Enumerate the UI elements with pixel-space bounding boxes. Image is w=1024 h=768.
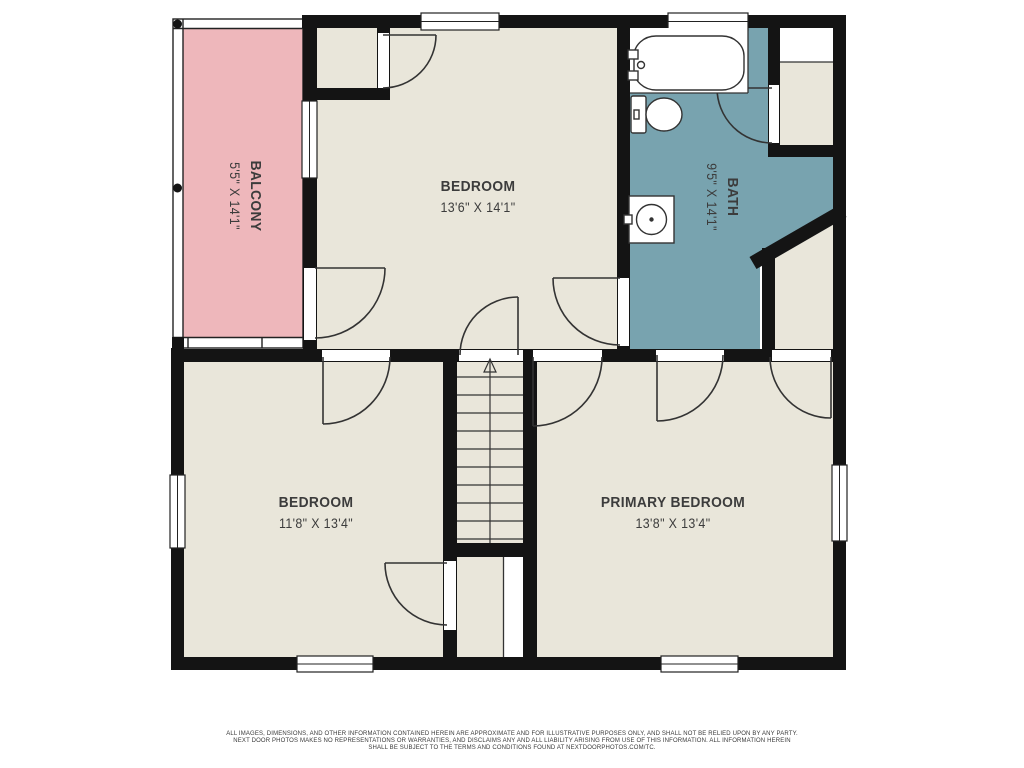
sink-icon [624, 196, 674, 243]
upper-bedroom-dims: 13'6" X 14'1" [441, 197, 516, 218]
disclaimer: ALL IMAGES, DIMENSIONS, AND OTHER INFORM… [0, 731, 1024, 752]
bath-closet-shelf [780, 28, 833, 62]
toilet-icon [631, 96, 682, 133]
lower-bedroom-name: BEDROOM [279, 492, 354, 513]
upper-bedroom-label: BEDROOM 13'6" X 14'1" [441, 176, 516, 218]
bathtub-icon [628, 28, 748, 93]
bath-label: BATH 9'5" X 14'1" [701, 163, 743, 231]
balcony-post [173, 184, 182, 193]
floor-plan-drawing [0, 0, 1024, 768]
disclaimer-line-2: NEXT DOOR PHOTOS MAKES NO REPRESENTATION… [0, 738, 1024, 745]
window-lower-bedroom-bottom [297, 656, 373, 672]
balcony-label: BALCONY 5'5" X 14'1" [224, 161, 266, 232]
primary-bedroom-label: PRIMARY BEDROOM 13'8" X 13'4" [601, 492, 745, 534]
disclaimer-line-3: SHALL BE SUBJECT TO THE TERMS AND CONDIT… [0, 745, 1024, 752]
disclaimer-line-1: ALL IMAGES, DIMENSIONS, AND OTHER INFORM… [0, 731, 1024, 738]
lower-bedroom-label: BEDROOM 11'8" X 13'4" [279, 492, 354, 534]
window-lower-bedroom-left [170, 475, 185, 548]
window-balcony-wall [302, 101, 317, 178]
lower-bedroom-dims: 11'8" X 13'4" [279, 513, 354, 534]
bath-closet-floor [780, 62, 833, 146]
window-upper-bedroom-top [421, 13, 499, 30]
balcony-post [172, 337, 184, 349]
bath-name: BATH [722, 163, 743, 231]
bath-dims: 9'5" X 14'1" [701, 163, 722, 231]
window-primary-bottom [661, 656, 738, 672]
primary-bedroom-name: PRIMARY BEDROOM [601, 492, 745, 513]
upper-bedroom-name: BEDROOM [441, 176, 516, 197]
floor-plan-page: BALCONY 5'5" X 14'1" BEDROOM 13'6" X 14'… [0, 0, 1024, 768]
primary-bedroom-dims: 13'8" X 13'4" [601, 513, 745, 534]
window-primary-right [832, 465, 847, 541]
balcony-dims: 5'5" X 14'1" [224, 161, 245, 232]
window-bath-top [668, 13, 748, 30]
balcony-post [173, 20, 182, 29]
balcony-name: BALCONY [245, 161, 266, 232]
hall-closet-shelf [504, 557, 523, 657]
